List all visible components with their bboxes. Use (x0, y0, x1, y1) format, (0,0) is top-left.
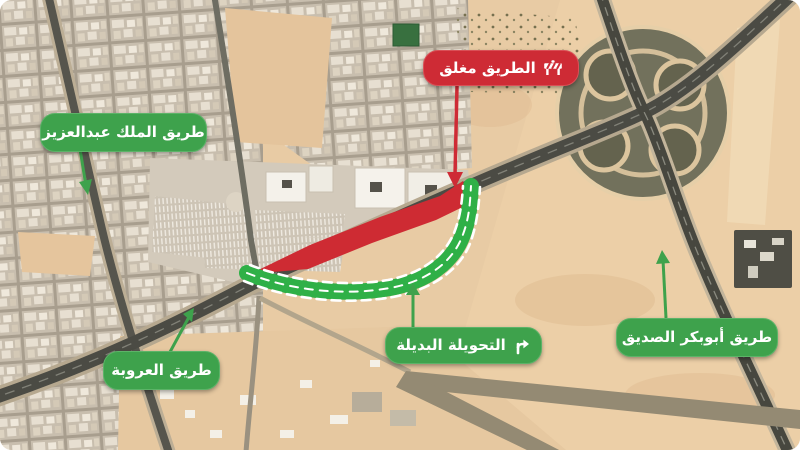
urubah-road-label: طريق العروبة (111, 363, 211, 378)
sports-field (393, 24, 419, 46)
king-abdulaziz-road-badge: طريق الملك عبدالعزيز (40, 113, 207, 152)
urubah-road-badge: طريق العروبة (103, 351, 220, 390)
alternative-detour-label: التحويلة البديلة (396, 338, 506, 353)
king-abdulaziz-road-label: طريق الملك عبدالعزيز (42, 125, 205, 140)
abubakr-road-badge: طريق أبوبكر الصديق (616, 318, 778, 357)
industrial-compound (734, 230, 792, 288)
barrier-icon (543, 59, 563, 77)
map-container: الطريق مغلق طريق الملك عبدالعزيز طريق ال… (0, 0, 800, 450)
detour-arrow-icon (513, 337, 531, 355)
closed-pointer-line (455, 86, 457, 176)
road-closed-badge: الطريق مغلق (423, 50, 579, 86)
road-closed-label: الطريق مغلق (439, 61, 536, 76)
alternative-detour-badge: التحويلة البديلة (385, 327, 542, 364)
abubakr-road-label: طريق أبوبكر الصديق (622, 330, 772, 345)
